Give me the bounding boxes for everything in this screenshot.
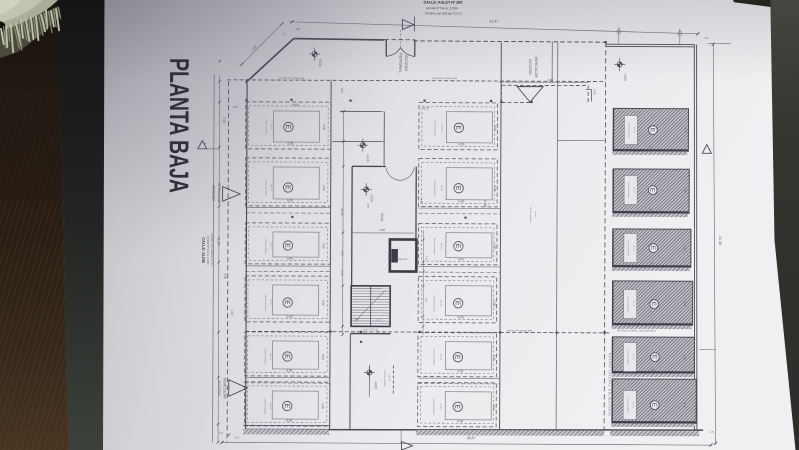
svg-text:um 3.1: um 3.1 <box>632 245 634 252</box>
svg-text:3.00: 3.00 <box>683 246 686 251</box>
svg-text:um 3.1: um 3.1 <box>388 375 390 382</box>
svg-text:5.00: 5.00 <box>287 199 293 203</box>
svg-text:um 3.1: um 3.1 <box>534 211 536 218</box>
svg-text:3.10: 3.10 <box>425 298 427 303</box>
svg-text:E: E <box>454 186 461 191</box>
svg-text:28.47: 28.47 <box>467 436 476 440</box>
svg-text:9.00: 9.00 <box>287 257 293 261</box>
svg-text:cochera exclusiva: cochera exclusiva <box>265 119 268 136</box>
svg-text:+0.00: +0.00 <box>318 59 322 67</box>
svg-text:1.5: 1.5 <box>704 36 708 40</box>
svg-text:cochera exclusiva: cochera exclusiva <box>529 206 532 223</box>
svg-text:3.00: 3.00 <box>321 403 325 409</box>
svg-text:um 3.1: um 3.1 <box>632 354 634 361</box>
svg-text:+0.00: +0.00 <box>374 381 378 389</box>
svg-text:4.42: 4.42 <box>420 198 424 204</box>
svg-text:um 3.1: um 3.1 <box>632 301 634 308</box>
svg-text:um 3.1: um 3.1 <box>270 242 272 249</box>
svg-text:cochera exclusiva: cochera exclusiva <box>433 295 436 312</box>
svg-text:0.15: 0.15 <box>425 256 427 261</box>
svg-text:cochera exclusiva: cochera exclusiva <box>433 238 436 255</box>
svg-text:E: E <box>283 300 290 305</box>
svg-text:3.00: 3.00 <box>493 244 497 250</box>
svg-text:3.00: 3.00 <box>492 404 496 410</box>
svg-text:cochera exclusiva: cochera exclusiva <box>264 179 267 196</box>
svg-text:cochera exclusiva: cochera exclusiva <box>627 182 629 199</box>
svg-text:ACCESO: ACCESO <box>217 380 221 396</box>
svg-text:1.10: 1.10 <box>340 270 344 276</box>
svg-text:4.07: 4.07 <box>366 203 370 209</box>
svg-text:8.55: 8.55 <box>292 103 298 107</box>
svg-text:+0.10: +0.10 <box>366 154 370 162</box>
svg-text:1.65: 1.65 <box>340 250 344 256</box>
svg-text:cochera exclusiva: cochera exclusiva <box>627 240 629 257</box>
svg-text:A: A <box>203 142 207 144</box>
svg-text:3.00: 3.00 <box>492 301 496 307</box>
svg-text:PASO: PASO <box>380 213 384 222</box>
svg-text:cochera exclusiva: cochera exclusiva <box>433 119 436 136</box>
svg-text:VEHICULAR: VEHICULAR <box>222 378 226 399</box>
svg-text:9.00: 9.00 <box>287 142 293 146</box>
svg-text:cochera exclusiva: cochera exclusiva <box>627 122 629 139</box>
svg-text:1.8: 1.8 <box>649 207 653 211</box>
svg-text:cochera exclusiva: cochera exclusiva <box>264 294 267 311</box>
svg-text:1.8: 1.8 <box>651 367 655 371</box>
svg-text:E: E <box>283 243 290 248</box>
svg-text:4.00: 4.00 <box>223 273 227 279</box>
svg-text:3.00: 3.00 <box>493 125 497 131</box>
svg-text:21.28: 21.28 <box>217 237 221 245</box>
svg-text:3.00: 3.00 <box>322 243 326 249</box>
svg-text:um 3.1: um 3.1 <box>633 127 635 134</box>
svg-text:PEATONAL: PEATONAL <box>398 53 402 73</box>
svg-text:1.00: 1.00 <box>340 87 344 93</box>
svg-text:3.00: 3.00 <box>492 355 496 361</box>
svg-text:45°: 45° <box>296 27 300 31</box>
svg-text:E: E <box>649 128 656 132</box>
svg-text:0.15 2.77 0.15: 0.15 2.77 0.15 <box>363 329 378 331</box>
svg-text:um 3.1: um 3.1 <box>269 353 271 360</box>
svg-text:1.00: 1.00 <box>232 105 238 109</box>
svg-text:1.8: 1.8 <box>650 319 654 323</box>
svg-text:E: E <box>283 354 290 359</box>
svg-text:um 3.1: um 3.1 <box>633 187 635 194</box>
svg-text:cochera exclusiva: cochera exclusiva <box>383 370 386 387</box>
svg-text:3.00: 3.00 <box>683 355 686 360</box>
svg-text:1.5: 1.5 <box>219 431 223 435</box>
svg-text:um 3.1: um 3.1 <box>440 185 442 192</box>
svg-text:15.80: 15.80 <box>483 200 487 208</box>
svg-text:Cumple con artículo 3.2.3.2.: Cumple con artículo 3.2.3.2. <box>425 11 463 15</box>
svg-text:3.00: 3.00 <box>683 302 686 307</box>
svg-text:3.00: 3.00 <box>321 354 325 360</box>
svg-text:5.00: 5.00 <box>222 117 226 123</box>
svg-text:1.5: 1.5 <box>281 31 287 37</box>
svg-text:E: E <box>454 355 461 360</box>
svg-text:E: E <box>651 403 658 407</box>
svg-text:Vereda Nº frat. A: 2.20m: Vereda Nº frat. A: 2.20m <box>426 6 459 10</box>
svg-text:3.00: 3.00 <box>322 124 326 130</box>
svg-text:+0.00: +0.00 <box>623 73 627 81</box>
svg-text:E: E <box>455 125 462 130</box>
svg-text:E: E <box>284 185 291 190</box>
svg-text:um 3.1: um 3.1 <box>269 299 271 306</box>
svg-text:9.00: 9.00 <box>457 419 463 423</box>
svg-text:cochera exclusiva: cochera exclusiva <box>264 237 267 254</box>
svg-text:1.8: 1.8 <box>650 261 654 265</box>
svg-text:1.00: 1.00 <box>593 89 597 95</box>
svg-text:3.00: 3.00 <box>684 188 687 193</box>
svg-text:CALLE: AULET Nº 200: CALLE: AULET Nº 200 <box>424 1 463 5</box>
svg-text:E: E <box>284 125 291 130</box>
svg-text:PLANTA BAJA: PLANTA BAJA <box>164 58 194 193</box>
svg-text:3.00: 3.00 <box>683 403 686 408</box>
svg-text:4.00: 4.00 <box>379 228 385 232</box>
svg-text:um 3.1: um 3.1 <box>632 402 634 409</box>
svg-text:um 3.1: um 3.1 <box>440 124 442 131</box>
svg-text:ACCESO: ACCESO <box>211 185 215 201</box>
svg-text:proyección planta alta: proyección planta alta <box>507 328 533 332</box>
svg-text:1.8: 1.8 <box>649 145 653 149</box>
svg-text:E: E <box>454 301 461 306</box>
svg-text:um 3.1: um 3.1 <box>440 300 442 307</box>
svg-text:23.47: 23.47 <box>489 19 498 23</box>
svg-text:9.00: 9.00 <box>458 142 464 146</box>
svg-text:A: A <box>707 148 711 150</box>
svg-text:4.00: 4.00 <box>547 78 553 82</box>
svg-text:VEHICULAR: VEHICULAR <box>217 183 221 204</box>
svg-text:9.00: 9.00 <box>458 257 464 261</box>
svg-text:um 3.1: um 3.1 <box>440 243 442 250</box>
svg-text:9.00: 9.00 <box>286 419 292 423</box>
svg-text:CALLE: ALEM: CALLE: ALEM <box>201 237 205 263</box>
svg-text:E: E <box>649 246 656 250</box>
svg-text:24.38: 24.38 <box>718 236 722 245</box>
svg-text:VEHICULAR: VEHICULAR <box>534 57 538 78</box>
svg-text:RETIRO LATERAL OBLIGATORIO: RETIRO LATERAL OBLIGATORIO <box>617 330 656 333</box>
svg-text:Vereda Nº frat. A: 2.20m: Vereda Nº frat. A: 2.20m <box>206 236 210 266</box>
svg-text:cochera exclusiva: cochera exclusiva <box>626 397 628 414</box>
svg-text:E: E <box>650 302 657 306</box>
svg-text:4.24: 4.24 <box>251 44 258 51</box>
svg-text:E: E <box>283 404 290 409</box>
svg-text:9.00: 9.00 <box>457 369 463 373</box>
svg-text:um 3.1: um 3.1 <box>269 403 271 410</box>
svg-text:14.45: 14.45 <box>340 208 344 216</box>
svg-text:proyección planta alta: proyección planta alta <box>432 76 458 80</box>
svg-text:Cumple con artículo 3.2.3.2.: Cumple con artículo 3.2.3.2. <box>210 233 214 267</box>
svg-text:3.00: 3.00 <box>322 185 326 191</box>
svg-text:E: E <box>648 188 655 192</box>
svg-text:1.5: 1.5 <box>235 435 239 439</box>
svg-text:5.00: 5.00 <box>458 315 464 319</box>
svg-text:3.00: 3.00 <box>493 186 497 192</box>
svg-text:1.8: 1.8 <box>651 417 655 421</box>
svg-text:E: E <box>651 355 658 359</box>
svg-text:cochera exclusiva: cochera exclusiva <box>432 398 435 415</box>
svg-text:ACCESO: ACCESO <box>528 59 532 75</box>
svg-text:3.00: 3.00 <box>321 300 325 306</box>
svg-text:6.27: 6.27 <box>423 106 429 110</box>
svg-text:RETIRO LATERAL OBLIGATORIO: RETIRO LATERAL OBLIGATORIO <box>607 353 611 416</box>
svg-text:+0.28: +0.28 <box>370 194 374 202</box>
svg-text:um 3.1: um 3.1 <box>439 354 441 361</box>
svg-text:1.5: 1.5 <box>710 430 714 434</box>
svg-text:ACCESO: ACCESO <box>404 55 408 71</box>
svg-text:1.00: 1.00 <box>230 310 234 316</box>
svg-text:cochera exclusiva: cochera exclusiva <box>627 296 629 313</box>
svg-text:5.00: 5.00 <box>458 199 464 203</box>
svg-text:cochera exclusiva: cochera exclusiva <box>433 180 436 197</box>
svg-text:E: E <box>454 244 461 249</box>
svg-text:cochera exclusiva: cochera exclusiva <box>626 349 628 366</box>
svg-text:proyección planta alta: proyección planta alta <box>279 76 305 80</box>
svg-text:E: E <box>453 404 460 409</box>
svg-text:cochera exclusiva: cochera exclusiva <box>432 349 435 366</box>
svg-text:um 3.1: um 3.1 <box>270 184 272 191</box>
svg-text:cochera exclusiva: cochera exclusiva <box>264 348 267 365</box>
svg-text:um 3.1: um 3.1 <box>270 124 272 131</box>
svg-text:0.15 1.50 0.15: 0.15 1.50 0.15 <box>392 259 407 261</box>
svg-text:cochera exclusiva: cochera exclusiva <box>263 398 266 415</box>
svg-text:3.00: 3.00 <box>684 128 687 133</box>
svg-text:9.00: 9.00 <box>286 369 292 373</box>
svg-text:um 3.1: um 3.1 <box>439 403 441 410</box>
svg-text:5.00: 5.00 <box>287 315 293 319</box>
